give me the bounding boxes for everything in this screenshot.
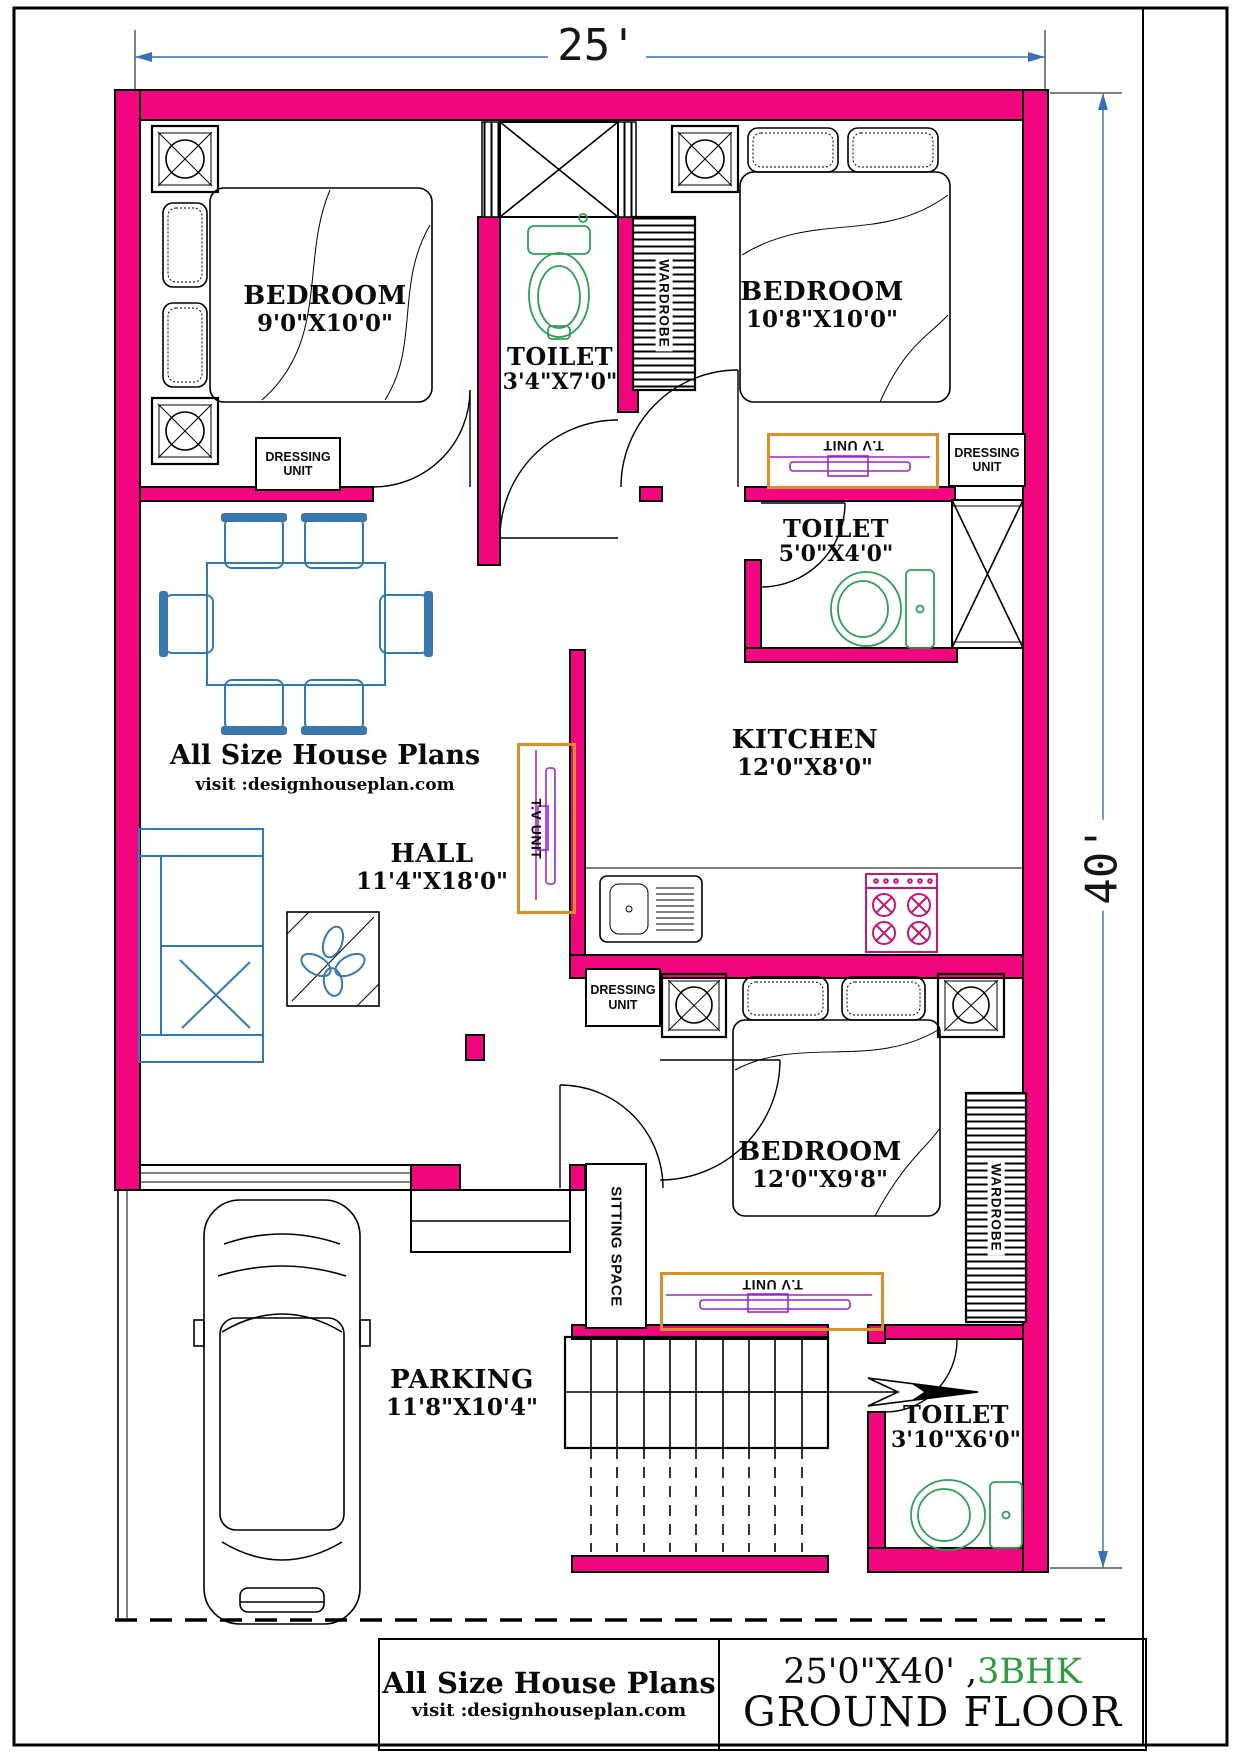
floor-plan-sheet: 25' 40' BEDROOM 9'0"X10'0" TOILET 3'4"X7…	[0, 0, 1240, 1754]
kitchen-fittings	[585, 868, 1023, 952]
dimension-width-label: 25'	[548, 24, 646, 68]
sitting-space-box: SITTING SPACE	[585, 1163, 647, 1329]
title-block-plan-cell: 25'0"X40' ,3BHK GROUND FLOOR	[720, 1640, 1145, 1749]
room-label-toilet-mid: TOILET 5'0"X4'0"	[756, 516, 916, 568]
dressing-unit-box-2: DRESSING UNIT	[948, 433, 1026, 487]
brand-website: visit :designhouseplan.com	[412, 1700, 686, 1721]
room-label-parking: PARKING 11'8"X10'4"	[342, 1366, 582, 1421]
dressing-unit-box-3: DRESSING UNIT	[585, 968, 661, 1027]
tv-unit-box-hall: T.V UNIT	[517, 743, 576, 914]
room-label-bedroom-bottom: BEDROOM 12'0"X9'8"	[690, 1138, 950, 1193]
wardrobe-label-top: WARDROBE	[633, 217, 695, 390]
dressing-unit-box-1: DRESSING UNIT	[255, 437, 341, 491]
stove-icon	[866, 874, 937, 952]
bhk-config: 3BHK	[977, 1652, 1082, 1692]
room-label-toilet-bottom: TOILET 3'10"X6'0"	[874, 1402, 1038, 1454]
watermark-title: All Size House Plans	[140, 740, 510, 771]
brand-name: All Size House Plans	[382, 1668, 715, 1700]
tv-unit-box-bedroom-top: T.V UNIT	[767, 433, 939, 489]
wardrobe-label-bottom: WARDROBE	[966, 1093, 1026, 1322]
room-label-bedroom-top-right: BEDROOM 10'8"X10'0"	[692, 278, 952, 333]
floor-name: GROUND FLOOR	[743, 1690, 1122, 1735]
watermark-website: visit :designhouseplan.com	[140, 775, 510, 795]
room-label-bedroom-top-left: BEDROOM 9'0"X10'0"	[195, 282, 455, 337]
title-block-brand-cell: All Size House Plans visit :designhousep…	[380, 1640, 720, 1749]
dimension-height-label: 40'	[1048, 810, 1158, 920]
plot-size: 25'0"X40' ,3BHK	[783, 1654, 1082, 1691]
dining-set	[159, 513, 433, 735]
title-block: All Size House Plans visit :designhousep…	[378, 1638, 1147, 1751]
room-label-kitchen: KITCHEN 12'0"X8'0"	[675, 726, 935, 781]
room-label-hall: HALL 11'4"X18'0"	[332, 840, 532, 895]
room-label-toilet-top: TOILET 3'4"X7'0"	[480, 344, 640, 396]
tv-unit-box-bedroom-bottom: T.V UNIT	[660, 1272, 884, 1331]
